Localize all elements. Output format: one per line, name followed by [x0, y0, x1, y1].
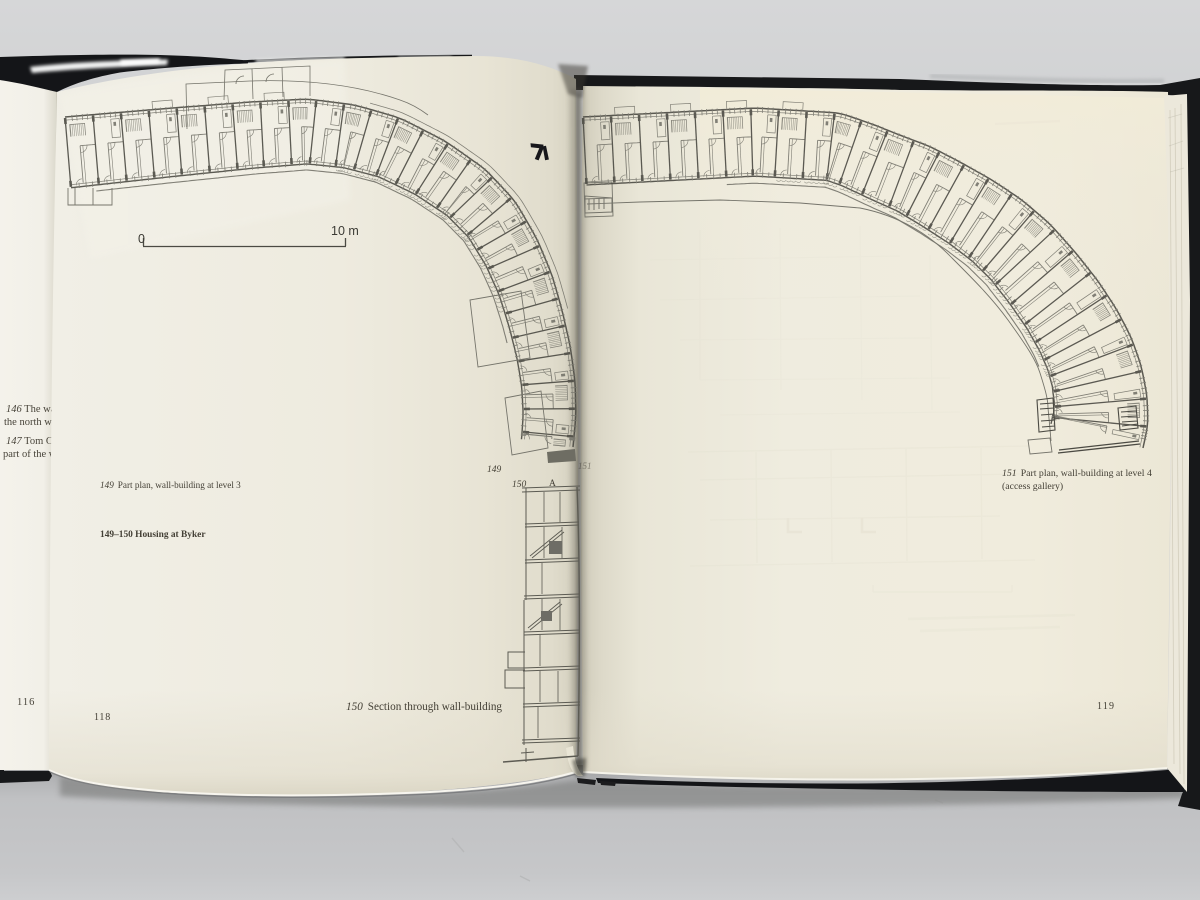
svg-text:146 The wal: 146 The wal — [6, 404, 58, 415]
svg-text:150: 150 — [512, 480, 527, 490]
svg-text:118: 118 — [94, 712, 111, 723]
svg-text:116: 116 — [17, 697, 35, 708]
svg-text:149–150 Housing at Byker: 149–150 Housing at Byker — [100, 530, 205, 540]
svg-text:119: 119 — [1097, 701, 1115, 712]
svg-text:0: 0 — [138, 232, 145, 246]
svg-text:(access gallery): (access gallery) — [1002, 481, 1063, 492]
svg-text:the north we: the north we — [4, 417, 57, 428]
svg-text:149: 149 — [487, 465, 502, 475]
svg-text:150Section through wall-buildi: 150Section through wall-building — [346, 701, 502, 713]
svg-text:147 Tom Cc: 147 Tom Cc — [6, 436, 58, 447]
svg-text:151: 151 — [578, 461, 592, 471]
svg-text:10 m: 10 m — [331, 224, 359, 238]
svg-text:A: A — [549, 479, 556, 489]
svg-text:149Part plan, wall-building at: 149Part plan, wall-building at level 3 — [100, 480, 241, 490]
svg-text:part of the w: part of the w — [3, 449, 57, 460]
svg-text:151Part plan, wall-building at: 151Part plan, wall-building at level 4 — [1002, 468, 1152, 479]
